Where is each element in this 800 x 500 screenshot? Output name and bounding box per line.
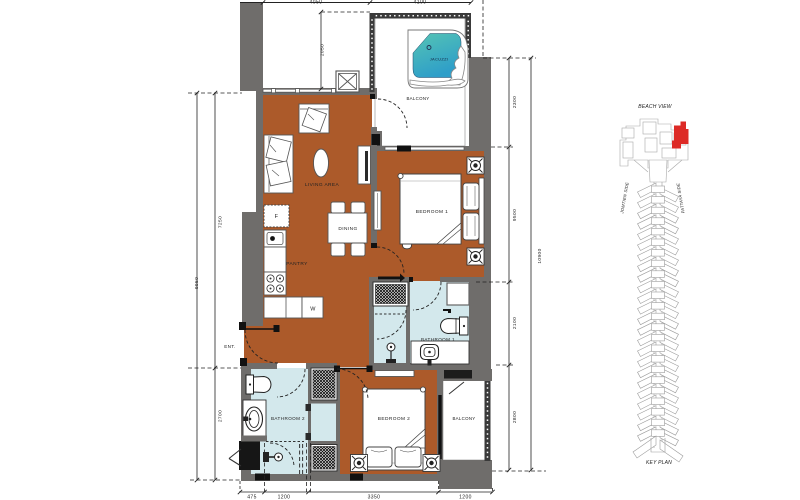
svg-text:4100: 4100 [414, 0, 427, 5]
svg-text:4050: 4050 [310, 0, 323, 5]
svg-text:2050: 2050 [320, 44, 326, 56]
svg-text:KEY PLAN: KEY PLAN [646, 460, 672, 466]
svg-text:10900: 10900 [537, 248, 543, 263]
svg-text:2700: 2700 [218, 410, 224, 422]
svg-text:BEDROOM 2: BEDROOM 2 [378, 416, 410, 422]
svg-text:PANTRY: PANTRY [286, 261, 308, 267]
svg-text:F: F [275, 214, 279, 220]
svg-text:BALCONY: BALCONY [452, 416, 475, 421]
svg-text:DINING: DINING [338, 226, 357, 232]
svg-text:3350: 3350 [368, 495, 381, 500]
svg-text:LIVING AREA: LIVING AREA [305, 182, 340, 188]
svg-text:2100: 2100 [512, 317, 518, 329]
svg-text:JOMTIEN SIDE: JOMTIEN SIDE [619, 182, 630, 215]
svg-text:BALCONY: BALCONY [406, 96, 429, 101]
svg-text:BEACH VIEW: BEACH VIEW [638, 104, 672, 110]
svg-text:7250: 7250 [218, 216, 224, 228]
svg-text:2800: 2800 [512, 411, 518, 423]
svg-text:475: 475 [247, 495, 257, 500]
svg-text:BATHROOM 1: BATHROOM 1 [421, 337, 455, 342]
svg-text:JACUZZI: JACUZZI [430, 57, 449, 62]
svg-text:W: W [310, 307, 316, 313]
svg-text:ENT.: ENT. [224, 344, 236, 349]
svg-text:2300: 2300 [512, 96, 518, 108]
svg-text:1200: 1200 [459, 495, 472, 500]
svg-text:BEDROOM 1: BEDROOM 1 [416, 209, 448, 215]
svg-text:9950: 9950 [194, 277, 200, 289]
svg-text:1200: 1200 [278, 495, 291, 500]
svg-text:9500: 9500 [512, 209, 518, 221]
svg-text:BATHROOM 2: BATHROOM 2 [271, 416, 305, 421]
